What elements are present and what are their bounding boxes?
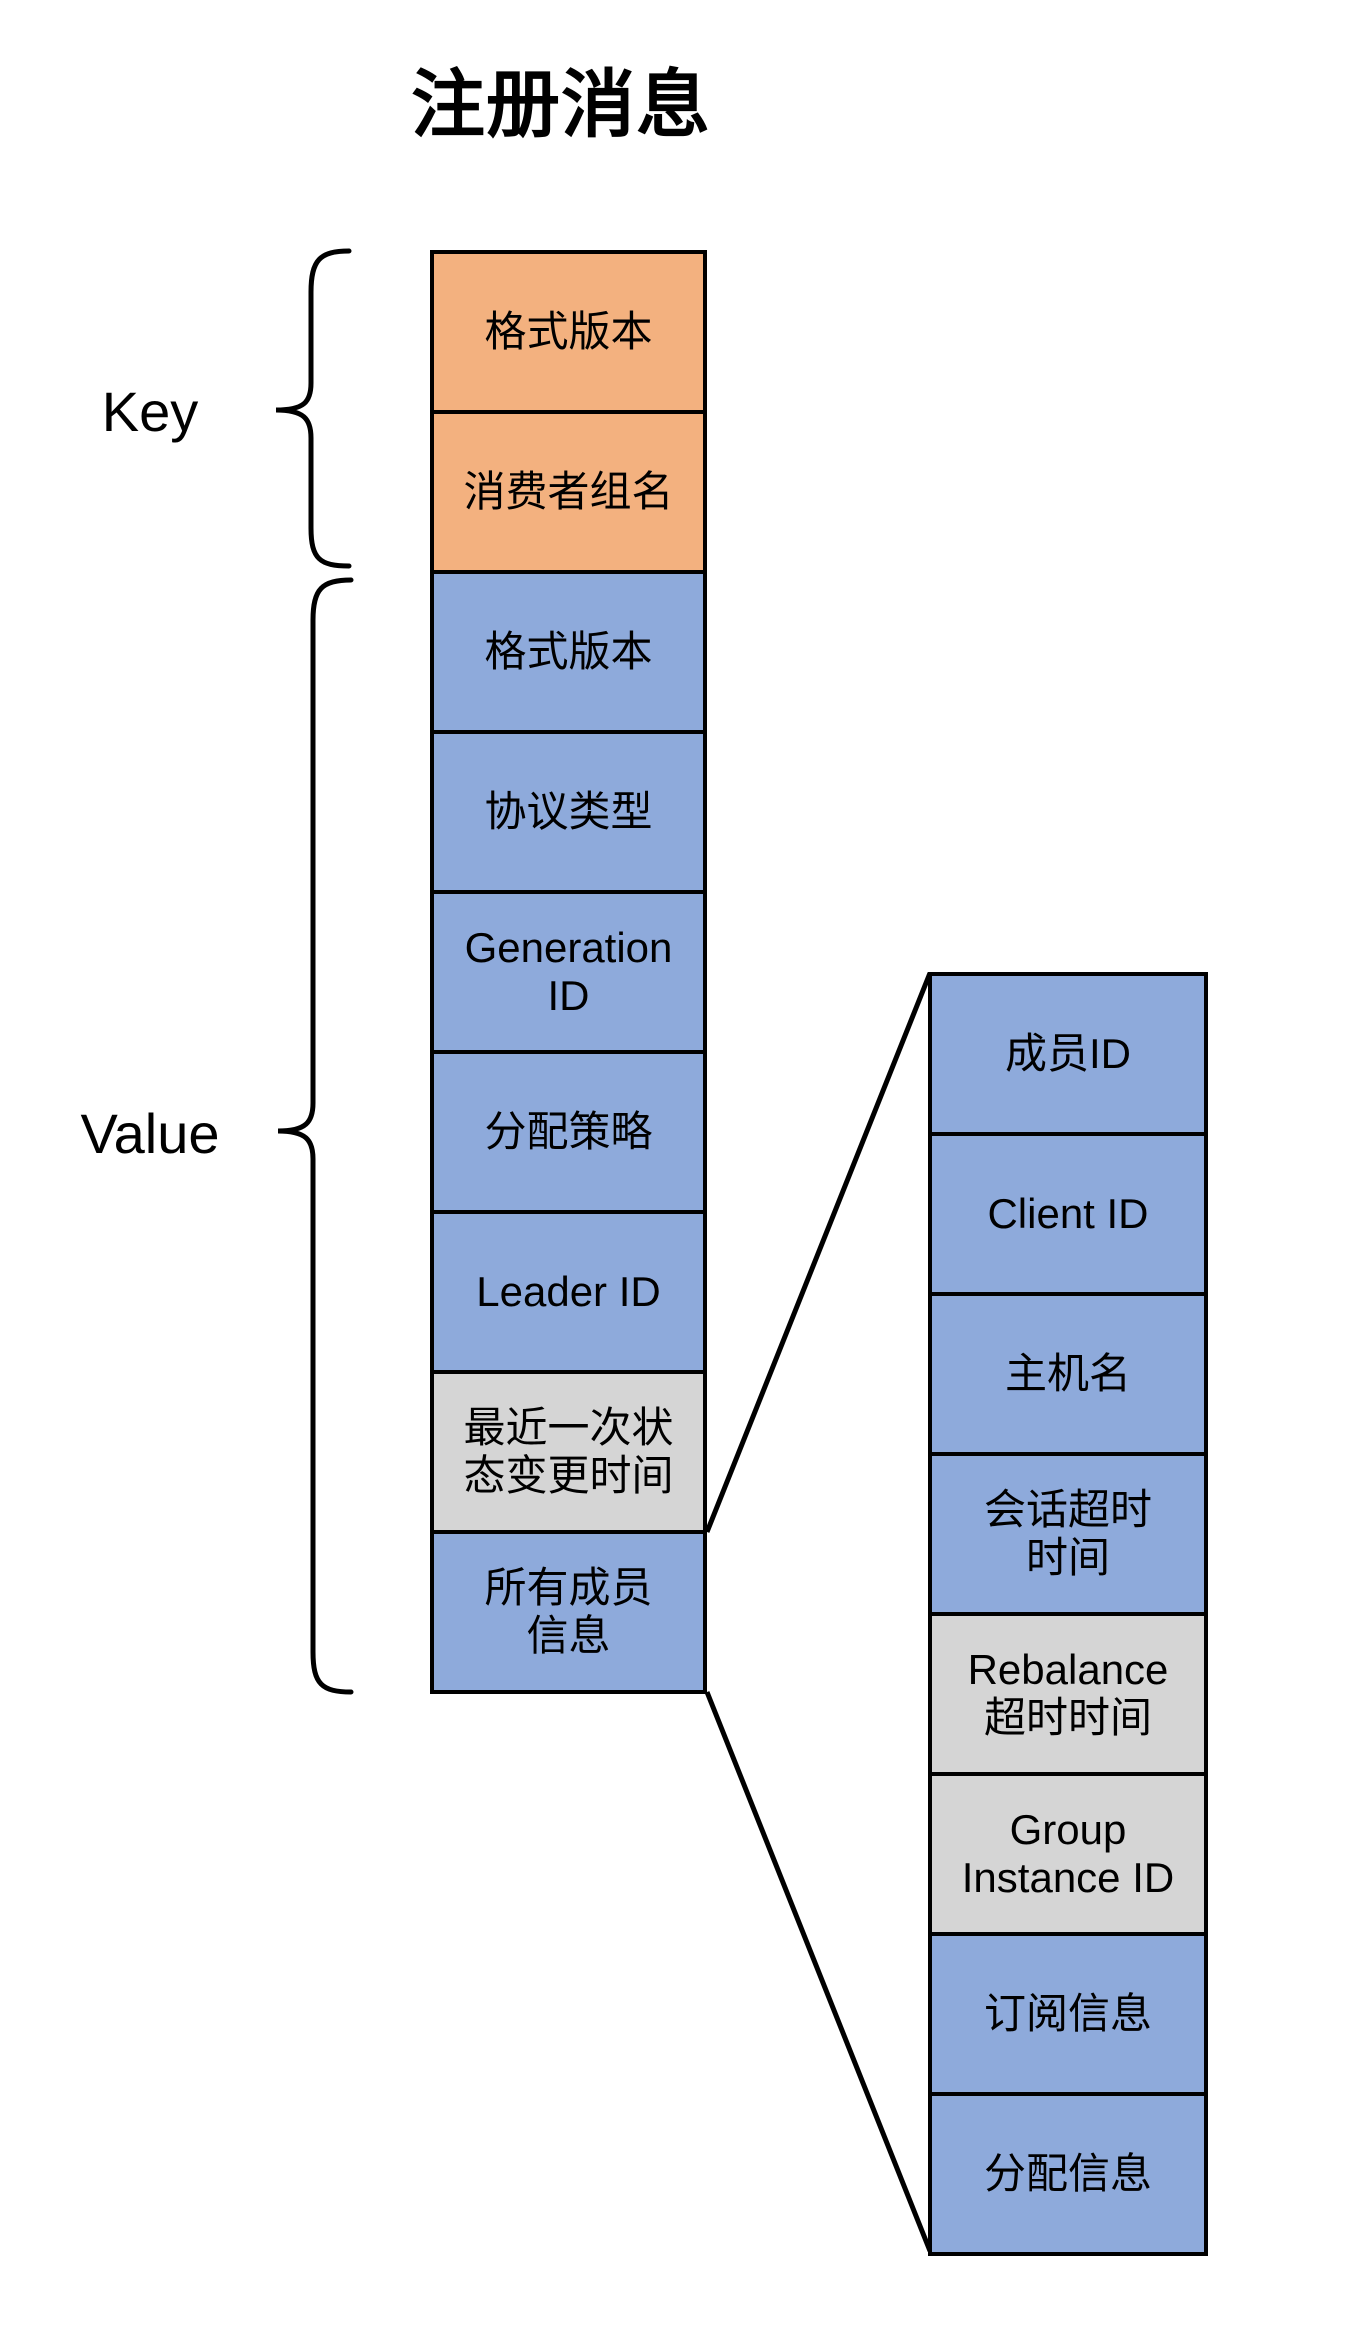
field-generation-id: Generation ID xyxy=(430,890,707,1054)
field-member-id: 成员ID xyxy=(928,972,1208,1136)
key-section-label: Key xyxy=(50,384,250,440)
field-all-members-info: 所有成员 信息 xyxy=(430,1530,707,1694)
field-last-state-change-time: 最近一次状 态变更时间 xyxy=(430,1370,707,1534)
field-leader-id: Leader ID xyxy=(430,1210,707,1374)
connector-line-top xyxy=(707,973,930,1532)
field-rebalance-timeout: Rebalance 超时时间 xyxy=(928,1612,1208,1776)
value-section-label: Value xyxy=(50,1106,250,1162)
field-session-timeout: 会话超时 时间 xyxy=(928,1452,1208,1616)
value-brace xyxy=(278,580,351,1692)
field-subscription-info: 订阅信息 xyxy=(928,1932,1208,2096)
field-key-consumer-group-name: 消费者组名 xyxy=(430,410,707,574)
field-key-format-version: 格式版本 xyxy=(430,250,707,414)
diagram-canvas: 注册消息 Key Value 格式版本 消费者组名 格式版本 协议类型 Gene… xyxy=(0,0,1361,2341)
connector-line-bottom xyxy=(707,1692,930,2251)
field-group-instance-id: Group Instance ID xyxy=(928,1772,1208,1936)
field-assignment-strategy: 分配策略 xyxy=(430,1050,707,1214)
field-protocol-type: 协议类型 xyxy=(430,730,707,894)
key-brace xyxy=(276,251,349,566)
field-value-format-version: 格式版本 xyxy=(430,570,707,734)
page-title: 注册消息 xyxy=(281,62,841,147)
field-assignment-info: 分配信息 xyxy=(928,2092,1208,2256)
field-hostname: 主机名 xyxy=(928,1292,1208,1456)
field-client-id: Client ID xyxy=(928,1132,1208,1296)
